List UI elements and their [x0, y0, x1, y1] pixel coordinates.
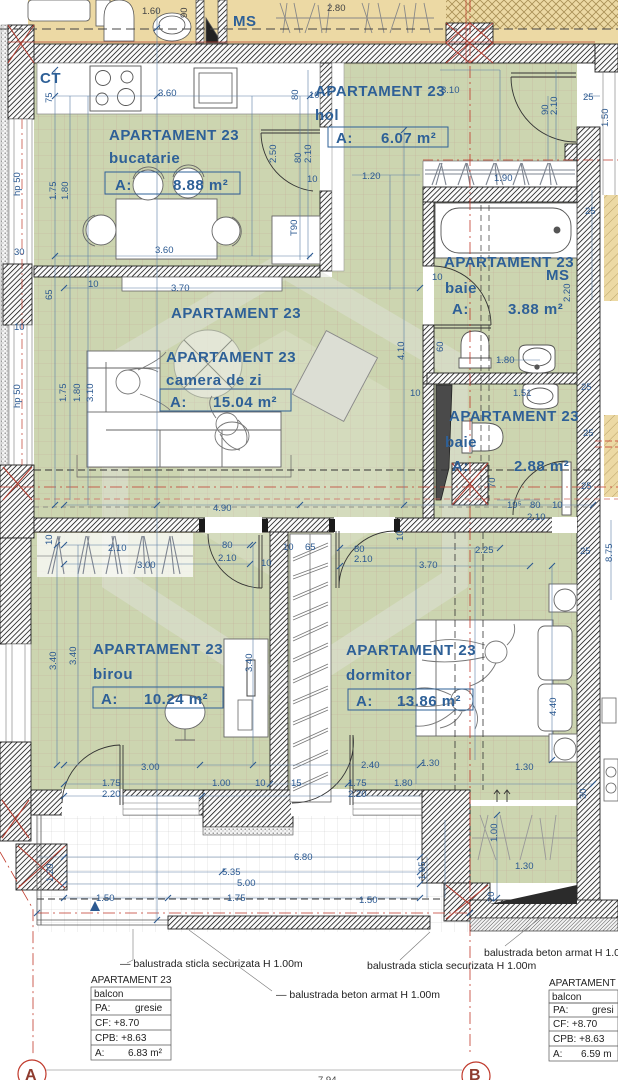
svg-text:CF: +8.70: CF: +8.70 — [95, 1018, 140, 1029]
svg-text:— balustrada beton armat H 1.0: — balustrada beton armat H 1.00m — [276, 989, 440, 1001]
svg-text:3.60: 3.60 — [158, 88, 177, 99]
svg-text:2.50: 2.50 — [268, 145, 279, 164]
svg-text:hp 50: hp 50 — [12, 384, 23, 408]
svg-text:A:: A: — [170, 394, 187, 411]
svg-text:APARTAMENT 23: APARTAMENT 23 — [109, 127, 239, 144]
svg-text:10: 10 — [410, 388, 421, 399]
svg-text:A:: A: — [336, 130, 353, 147]
svg-text:CPB: +8.63: CPB: +8.63 — [95, 1033, 147, 1044]
svg-text:15: 15 — [291, 778, 302, 789]
svg-text:80: 80 — [530, 500, 541, 511]
svg-text:balcon: balcon — [552, 992, 581, 1003]
svg-text:2.20: 2.20 — [348, 789, 367, 800]
svg-text:2.10: 2.10 — [527, 512, 546, 523]
svg-text:90: 90 — [179, 7, 190, 18]
svg-text:balcon: balcon — [94, 989, 123, 1000]
svg-text:APARTAMENT 23: APARTAMENT 23 — [449, 408, 579, 425]
svg-text:CT: CT — [40, 70, 61, 87]
svg-text:1.80: 1.80 — [496, 355, 515, 366]
svg-text:birou: birou — [93, 666, 133, 683]
svg-text:1.75: 1.75 — [227, 893, 246, 904]
svg-text:PA:: PA: — [553, 1005, 568, 1016]
svg-text:25: 25 — [583, 428, 594, 439]
svg-text:3.10: 3.10 — [441, 85, 460, 96]
svg-text:APARTAMENT 23: APARTAMENT 23 — [91, 975, 172, 986]
svg-text:— balustrada sticla securizata: — balustrada sticla securizata H 1.00m — [120, 958, 303, 970]
svg-text:APARTAMENT 23: APARTAMENT 23 — [171, 305, 301, 322]
svg-text:1.75: 1.75 — [348, 778, 367, 789]
svg-text:25: 25 — [585, 206, 596, 217]
svg-text:2.10: 2.10 — [218, 553, 237, 564]
svg-text:balustrada beton armat H 1.0: balustrada beton armat H 1.0 — [484, 947, 618, 959]
svg-text:1.50: 1.50 — [96, 893, 115, 904]
svg-text:3.10: 3.10 — [85, 384, 96, 403]
svg-text:10: 10 — [261, 558, 272, 569]
svg-text:B: B — [469, 1067, 481, 1080]
svg-text:1.30: 1.30 — [515, 861, 534, 872]
svg-text:balustrada sticla securizata H: balustrada sticla securizata H 1.00m — [367, 960, 536, 972]
svg-text:8.88 m²: 8.88 m² — [173, 177, 228, 194]
svg-text:1.90: 1.90 — [494, 173, 513, 184]
svg-text:6.83 m²: 6.83 m² — [128, 1048, 163, 1059]
svg-text:baie: baie — [445, 280, 477, 297]
svg-text:75: 75 — [44, 92, 55, 103]
svg-text:1.80: 1.80 — [394, 778, 413, 789]
svg-text:80: 80 — [290, 89, 301, 100]
svg-text:15.04 m²: 15.04 m² — [213, 394, 277, 411]
svg-text:A:: A: — [101, 691, 118, 708]
svg-text:65: 65 — [44, 289, 55, 300]
svg-text:1.75: 1.75 — [102, 778, 121, 789]
svg-text:30: 30 — [14, 247, 25, 258]
svg-text:A:: A: — [95, 1048, 104, 1059]
svg-text:A: A — [25, 1067, 37, 1080]
svg-text:10: 10 — [283, 542, 294, 553]
svg-text:1.60: 1.60 — [142, 6, 161, 17]
svg-text:baie: baie — [445, 434, 477, 451]
svg-text:2.10: 2.10 — [354, 554, 373, 565]
svg-text:10: 10 — [14, 322, 25, 333]
svg-text:3.70: 3.70 — [419, 560, 438, 571]
svg-text:A:: A: — [115, 177, 132, 194]
svg-text:10: 10 — [552, 500, 563, 511]
svg-text:1.20: 1.20 — [362, 171, 381, 182]
svg-text:3.70: 3.70 — [171, 283, 190, 294]
svg-text:10: 10 — [432, 272, 443, 283]
svg-text:hp 50: hp 50 — [12, 172, 23, 196]
svg-text:MS: MS — [233, 13, 257, 30]
svg-text:3.40: 3.40 — [48, 652, 59, 671]
svg-text:APARTAMENT 23: APARTAMENT 23 — [315, 83, 445, 100]
svg-text:1.05: 1.05 — [417, 862, 428, 881]
svg-text:8.75: 8.75 — [604, 544, 615, 563]
svg-text:1.20: 1.20 — [45, 864, 56, 883]
svg-text:A:: A: — [452, 458, 469, 475]
svg-text:3.88 m²: 3.88 m² — [508, 301, 563, 318]
svg-text:1.75: 1.75 — [58, 384, 69, 403]
svg-text:2.40: 2.40 — [361, 760, 380, 771]
svg-text:2.20: 2.20 — [102, 789, 121, 800]
svg-text:1.30: 1.30 — [515, 762, 534, 773]
svg-text:10: 10 — [395, 530, 406, 541]
svg-text:1.80: 1.80 — [72, 384, 83, 403]
svg-text:A:: A: — [452, 301, 469, 318]
svg-text:APARTAMENT 23: APARTAMENT 23 — [93, 641, 223, 658]
svg-text:MS: MS — [546, 267, 570, 284]
svg-text:4.10: 4.10 — [396, 342, 407, 361]
svg-text:A:: A: — [356, 693, 373, 710]
svg-text:1.51: 1.51 — [513, 388, 532, 399]
svg-text:10: 10 — [255, 778, 266, 789]
svg-text:2.88 m²: 2.88 m² — [514, 458, 569, 475]
svg-text:dormitor: dormitor — [346, 667, 412, 684]
svg-text:CF: +8.70: CF: +8.70 — [553, 1019, 598, 1030]
svg-text:2.25: 2.25 — [475, 545, 494, 556]
svg-text:13.86 m²: 13.86 m² — [397, 693, 461, 710]
svg-text:2.10: 2.10 — [108, 543, 127, 554]
svg-text:1.30: 1.30 — [421, 758, 440, 769]
svg-text:60: 60 — [435, 341, 446, 352]
svg-text:gresi: gresi — [592, 1005, 614, 1016]
svg-text:2.20: 2.20 — [562, 284, 573, 303]
svg-text:APARTAMENT 23: APARTAMENT 23 — [166, 349, 296, 366]
svg-text:70: 70 — [487, 477, 498, 488]
svg-text:2.80: 2.80 — [327, 3, 346, 14]
svg-text:5.35: 5.35 — [222, 867, 241, 878]
svg-text:1.00: 1.00 — [489, 824, 500, 843]
svg-text:1.00: 1.00 — [212, 778, 231, 789]
svg-text:3.00: 3.00 — [137, 560, 156, 571]
svg-text:20: 20 — [486, 891, 497, 902]
svg-text:3.60: 3.60 — [155, 245, 174, 256]
svg-text:10.24 m²: 10.24 m² — [144, 691, 208, 708]
svg-text:camera de zi: camera de zi — [166, 372, 262, 389]
svg-text:APARTAMENT 2: APARTAMENT 2 — [549, 978, 618, 989]
svg-text:1.75: 1.75 — [48, 182, 59, 201]
svg-text:10: 10 — [309, 90, 320, 101]
svg-text:A:: A: — [553, 1049, 562, 1060]
svg-text:25: 25 — [581, 481, 592, 492]
svg-text:7.94: 7.94 — [318, 1075, 337, 1080]
svg-text:APARTAMENT 23: APARTAMENT 23 — [346, 642, 476, 659]
svg-text:80: 80 — [222, 540, 233, 551]
svg-text:PA:: PA: — [95, 1003, 110, 1014]
svg-text:T90: T90 — [289, 220, 300, 236]
svg-text:10: 10 — [88, 279, 99, 290]
svg-text:4.90: 4.90 — [213, 503, 232, 514]
svg-text:10: 10 — [44, 534, 55, 545]
svg-text:hol: hol — [315, 107, 339, 124]
svg-text:30: 30 — [578, 788, 589, 799]
svg-text:19⁵: 19⁵ — [507, 500, 522, 511]
svg-text:5.00: 5.00 — [237, 878, 256, 889]
svg-text:3.40: 3.40 — [244, 654, 255, 673]
svg-text:bucatarie: bucatarie — [109, 150, 180, 167]
svg-text:1.80: 1.80 — [60, 182, 71, 201]
svg-text:25: 25 — [581, 382, 592, 393]
svg-text:6.59 m: 6.59 m — [581, 1049, 612, 1060]
svg-text:3.40: 3.40 — [68, 647, 79, 666]
svg-text:1.50: 1.50 — [600, 109, 611, 128]
svg-text:25: 25 — [583, 92, 594, 103]
svg-text:65: 65 — [305, 542, 316, 553]
svg-text:10: 10 — [307, 174, 318, 185]
svg-text:CPB: +8.63: CPB: +8.63 — [553, 1034, 605, 1045]
svg-text:gresie: gresie — [135, 1003, 163, 1014]
svg-text:1.50: 1.50 — [359, 895, 378, 906]
svg-text:2.10: 2.10 — [549, 97, 560, 116]
svg-text:6.07 m²: 6.07 m² — [381, 130, 436, 147]
svg-text:3.00: 3.00 — [141, 762, 160, 773]
svg-text:25: 25 — [580, 546, 591, 557]
svg-text:2.10: 2.10 — [303, 145, 314, 164]
svg-text:6.80: 6.80 — [294, 852, 313, 863]
svg-text:4.40: 4.40 — [548, 698, 559, 717]
